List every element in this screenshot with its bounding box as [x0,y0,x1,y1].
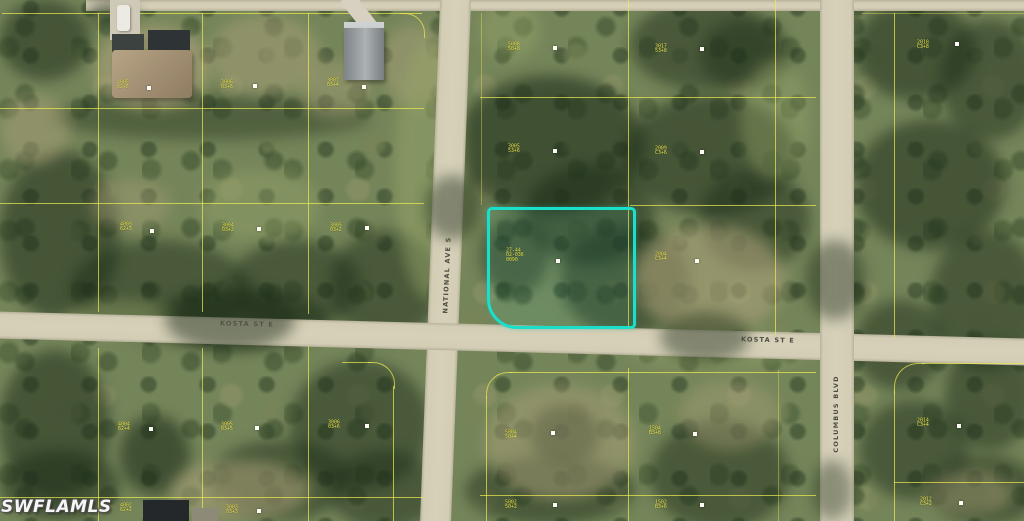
vegetation-blob [855,120,1005,250]
parcel-marker [700,503,704,507]
parcel-label: 400362+3 [120,222,132,232]
parcel-line [393,386,394,521]
parcel-line [0,108,424,109]
parcel-marker [700,47,704,51]
parcel-line [510,372,816,373]
parcel-line [342,362,371,363]
parcel-line [862,13,1024,14]
vegetation-blob [860,400,970,500]
parcel-marker [700,150,704,154]
parcel-marker [957,424,961,428]
parcel-line [0,203,424,204]
parcel-line [98,348,99,521]
parcel-label: 27-4402-0360090 [506,248,524,263]
parcel-label: 1504B3+8 [649,426,661,436]
parcel-label: 400462+4 [118,422,130,432]
parcel-line [480,97,816,98]
parcel-corner [368,362,395,389]
parcel-label: 500450+4 [505,430,517,440]
street-label-columbus-blvd: COLUMBUS BLVD [832,359,840,469]
vegetation-blob [455,75,645,215]
house-roof [112,50,192,98]
vegetation-blob [700,170,810,270]
vegetation-blob [530,405,600,465]
parcel-marker [693,432,697,436]
parcel-label: 400562+5 [117,80,129,90]
vegetation-blob [290,360,430,490]
parcel-line [894,482,1024,483]
parcel-line [775,0,776,335]
parcel-line [308,346,309,521]
vegetation-blob [635,225,785,335]
parcel-label: 2018C3+8 [917,40,929,50]
parcel-marker [257,509,261,513]
vegetation-blob [230,240,360,330]
parcel-line [202,13,203,312]
vegetation-blob [630,0,780,90]
parcel-label: 300603+6 [221,80,233,90]
parcel-label: 300703+4 [327,78,339,88]
parcel-marker [257,227,261,231]
parcel-marker [553,46,557,50]
parcel-line [480,495,816,496]
vegetation-blob [700,20,790,90]
parcel-line [894,391,895,521]
parcel-marker [150,229,154,233]
parcel-label: 300403+2 [222,223,234,233]
parcel-label: 301753+8 [655,44,667,54]
parcel-line [628,368,629,521]
parcel-marker [362,85,366,89]
parcel-label: 300503+2 [330,223,342,233]
parcel-label: 300553+6 [508,144,520,154]
shed-roof [143,500,189,521]
parcel-line [630,205,816,206]
parcel-corner [400,13,425,38]
parcel-line [202,348,203,521]
map[interactable]: 400562+5300603+6300703+4500850+8301753+8… [0,0,1024,521]
vegetation-blob [925,470,1015,515]
parcel-label: 2012C3+2 [920,497,932,507]
parcel-label: 500250+2 [505,500,517,510]
parcel-marker [556,259,560,263]
vegetation-blob [50,95,370,140]
vegetation-blob [0,0,90,80]
vegetation-blob [855,0,975,100]
vegetation-blob [485,385,635,500]
highlighted-parcel-boundary[interactable] [487,207,636,329]
parcel-label: 2009C3+6 [655,146,667,156]
parcel-label: 1502B3+6 [655,500,667,510]
parcel-line [308,13,309,314]
parcel-marker [365,226,369,230]
parcel-marker [147,86,151,90]
vegetation-blob [680,380,780,450]
parcel-marker [553,149,557,153]
vegetation-blob [930,455,1024,521]
parcel-marker [955,42,959,46]
parcel-line [486,396,487,521]
parcel-marker [253,84,257,88]
parcel-label: 2014C3+4 [917,418,929,428]
parcel-line [894,13,895,338]
parcel-label: 2004C3+4 [655,252,667,262]
vegetation-blob [120,415,190,495]
parcel-label: 300303+3 [226,505,238,515]
parcel-marker [553,503,557,507]
parcel-line [481,13,482,205]
vegetation-blob [0,350,110,500]
watermark: SWFLAMLS [1,497,112,517]
house-roof [344,28,384,80]
parcel-line [778,370,779,521]
vegetation-blob [740,60,810,180]
parcel-label: 300503+5 [221,422,233,432]
road-top [86,0,1024,11]
parcel-marker [149,427,153,431]
vegetation-blob [940,20,1024,140]
parcel-corner [486,372,513,399]
parcel-marker [695,259,699,263]
vegetation-blob [465,455,635,521]
parcel-label: 400262+2 [120,503,132,513]
parcel-marker [959,501,963,505]
vegetation-blob [650,420,790,521]
vegetation-blob [625,95,795,215]
parcel-marker [551,431,555,435]
car [117,5,130,31]
parcel-label: 500850+8 [508,42,520,52]
parcel-label: 300603+6 [328,420,340,430]
parcel-marker [365,424,369,428]
parcel-corner [894,363,925,394]
vegetation-blob [170,460,310,520]
vegetation-blob [0,95,70,165]
parcel-marker [255,426,259,430]
vegetation-blob [0,150,120,320]
shed-roof [192,508,218,521]
parcel-line [98,13,99,312]
